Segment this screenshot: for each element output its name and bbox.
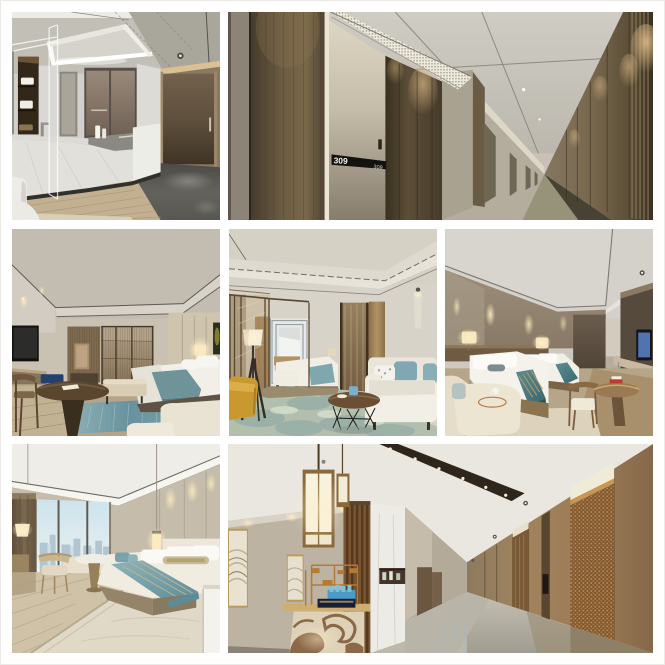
svg-text:309: 309 (373, 164, 383, 171)
svg-text:309: 309 (333, 155, 348, 166)
